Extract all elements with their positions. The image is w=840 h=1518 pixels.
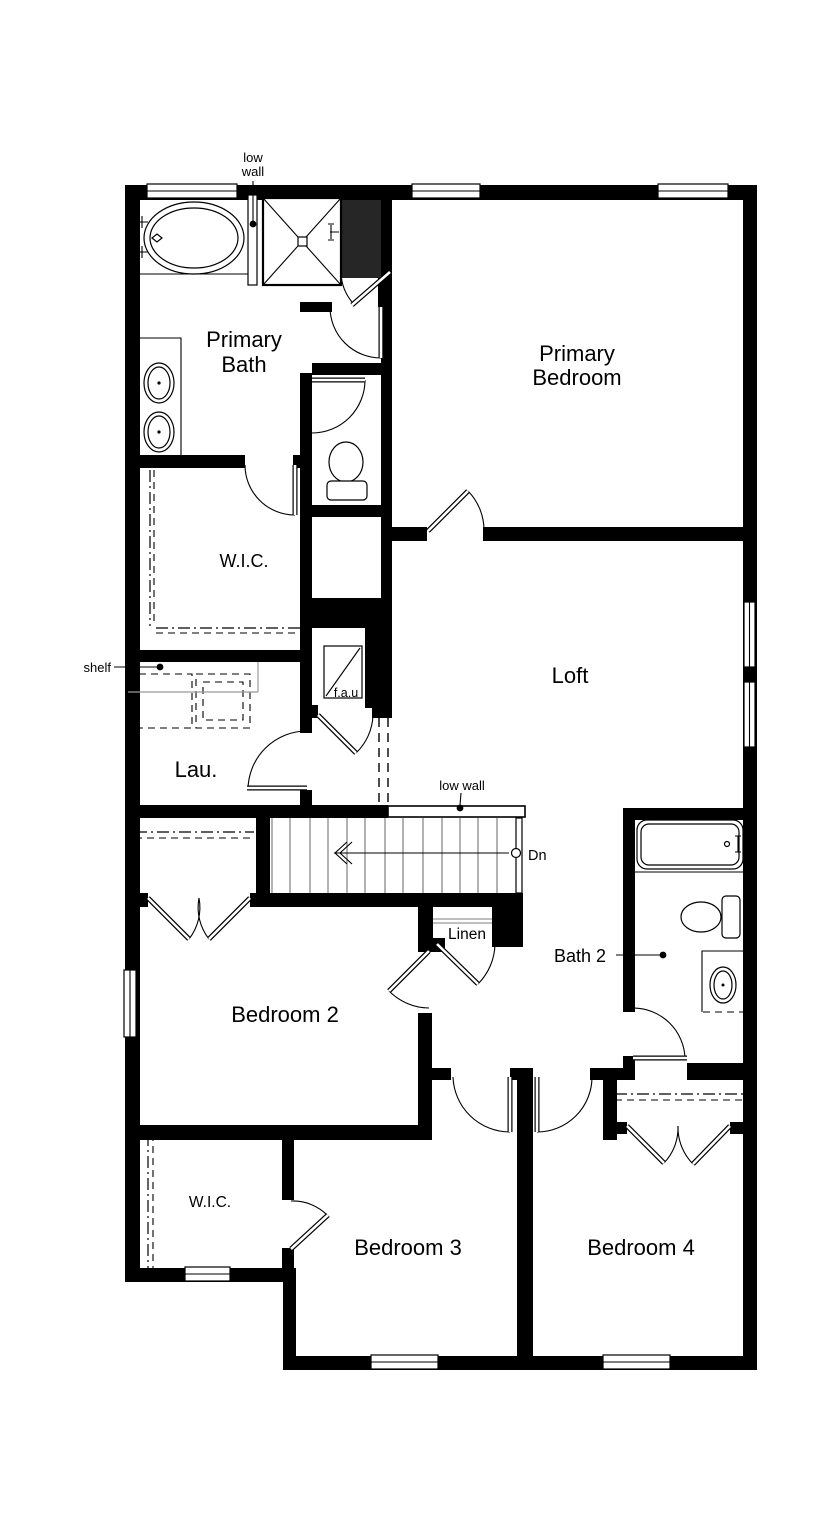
wic2-door <box>291 1201 328 1249</box>
window <box>744 602 755 667</box>
vanity-double-sink-icon <box>140 338 181 455</box>
window <box>603 1355 670 1369</box>
windows <box>124 184 755 1369</box>
shower-icon <box>263 198 341 285</box>
bedroom4-label: Bedroom 4 <box>587 1235 695 1260</box>
toilet-icon <box>681 896 740 938</box>
stairs-down-label: Dn <box>528 848 547 864</box>
stair-low-wall <box>388 806 525 817</box>
stair-treads <box>272 818 497 893</box>
toilet-room-door <box>312 380 365 433</box>
primary-bath-label-line2: Bath <box>221 352 266 377</box>
floor-plan-svg: low wall Primary Bath Primary Bedroom W.… <box>0 0 840 1518</box>
laundry-label: Lau. <box>175 757 218 782</box>
fau-label: f.a.u <box>334 686 358 700</box>
bedroom4-closet-doors <box>627 1126 730 1164</box>
primary-bedroom-label-line1: Primary <box>539 341 615 366</box>
bedroom2-label: Bedroom 2 <box>231 1002 339 1027</box>
fau-closet-door <box>318 715 373 753</box>
window <box>412 184 480 198</box>
window <box>744 682 755 747</box>
bathtub-icon <box>136 202 248 274</box>
laundry-appliances <box>128 662 258 728</box>
window <box>658 184 728 198</box>
primary-bedroom-door <box>428 491 484 531</box>
bedroom3-label: Bedroom 3 <box>354 1235 462 1260</box>
vanity-sink-icon <box>702 951 743 1012</box>
linen-label: Linen <box>448 926 486 943</box>
laundry-door <box>247 731 307 790</box>
bedroom2-door <box>389 951 429 1008</box>
bedroom3-door <box>453 1077 510 1132</box>
window <box>147 184 237 198</box>
loft-label: Loft <box>552 663 589 688</box>
linen-shelves <box>433 919 492 923</box>
shelf-label: shelf <box>84 660 112 675</box>
window <box>124 970 136 1037</box>
toilet-icon <box>327 442 367 500</box>
primary-bedroom-label-line2: Bedroom <box>532 365 621 390</box>
stair-direction-arrow <box>334 842 521 864</box>
primary-wic-door <box>245 465 295 515</box>
low-wall-tub-label-line2: wall <box>241 164 265 179</box>
bathtub-icon <box>635 820 743 872</box>
bedroom2-closet-doors <box>148 898 250 939</box>
window <box>371 1355 438 1369</box>
bath2-label: Bath 2 <box>554 946 606 966</box>
bath2-door <box>633 1008 687 1058</box>
primary-wic-label: W.I.C. <box>220 551 269 571</box>
bath2-fixtures <box>635 820 743 1012</box>
linen-door <box>437 944 495 984</box>
low-wall-tub-label-line1: low <box>243 150 263 165</box>
bedroom4-door <box>537 1077 592 1132</box>
primary-bath-door <box>330 307 381 358</box>
wic2-label: W.I.C. <box>189 1194 231 1211</box>
primary-bath-label-line1: Primary <box>206 327 282 352</box>
doors <box>148 272 730 1249</box>
low-wall-stairs-label: low wall <box>439 778 485 793</box>
floor-plan-page: low wall Primary Bath Primary Bedroom W.… <box>0 0 840 1518</box>
window <box>185 1267 230 1281</box>
stairs <box>272 806 525 893</box>
